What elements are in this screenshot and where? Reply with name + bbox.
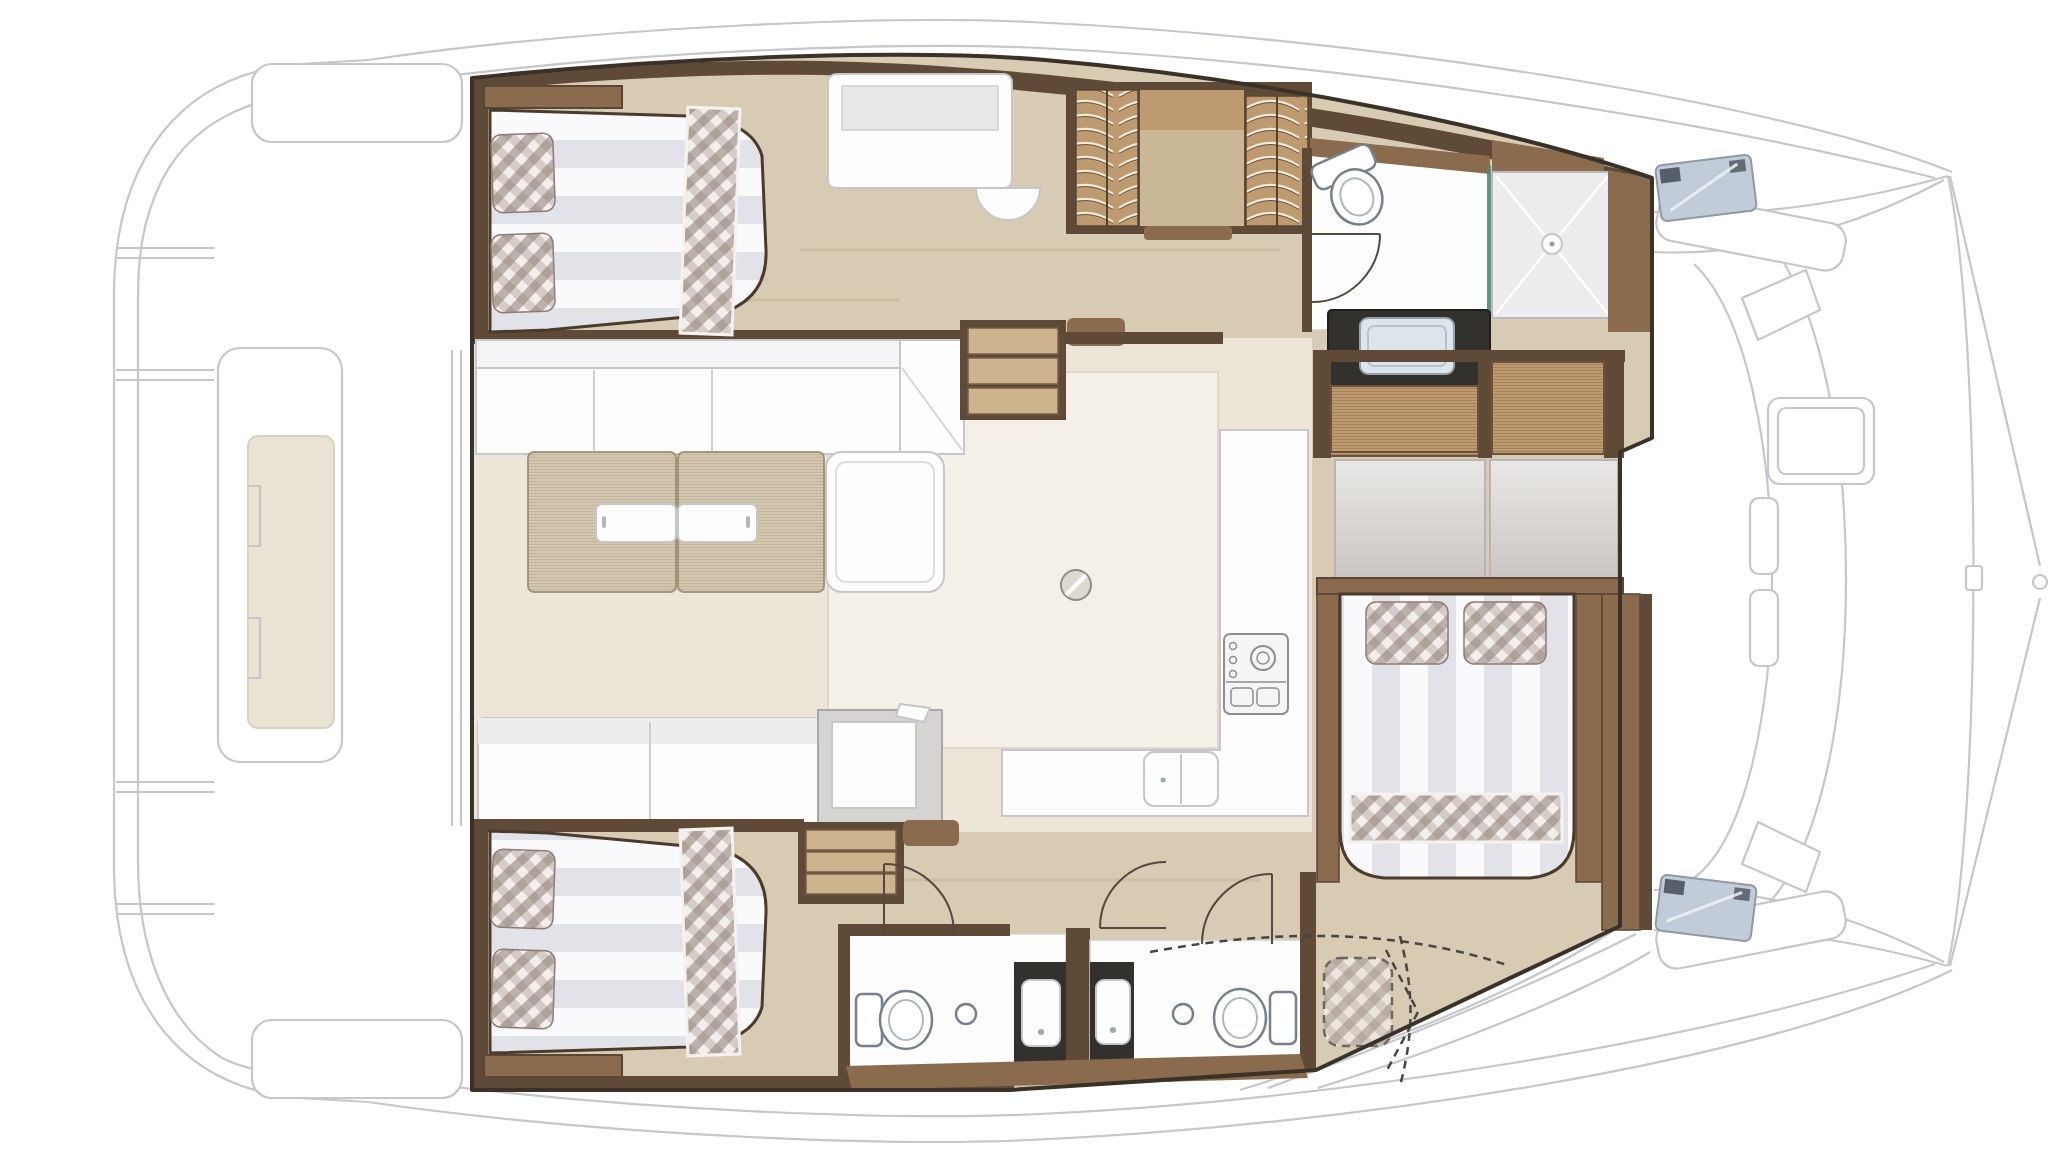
locker-door-2-grain xyxy=(1492,362,1604,454)
foredeck-sunpad xyxy=(1768,398,1874,484)
port-wardrobe-unit xyxy=(1066,82,1312,240)
bed-starboard-runner xyxy=(680,828,740,1056)
stair-tread-3 xyxy=(806,874,896,894)
salon-sofa xyxy=(476,340,964,454)
bed-port-pillow-1 xyxy=(491,133,556,213)
bed-port-pillow-2 xyxy=(491,233,556,313)
locker-frame-top xyxy=(1313,350,1625,362)
table-handle-left xyxy=(602,516,606,528)
floorplan-page xyxy=(0,0,2048,1163)
foredeck-backrest-top xyxy=(1742,270,1820,340)
hatch-frame-mark2 xyxy=(1729,159,1746,173)
wardrobe-ledge xyxy=(1144,226,1232,240)
toilet-starboard-2 xyxy=(1214,989,1296,1047)
vanity1-drain xyxy=(1038,1029,1044,1035)
stair-tread-2 xyxy=(806,852,896,872)
table-insert-left xyxy=(596,504,676,542)
bed-owner-pillow-2 xyxy=(1464,602,1546,664)
vanity2-sink xyxy=(1096,980,1130,1044)
cockpit-table-top xyxy=(248,436,334,728)
headboard-panel-left xyxy=(1335,460,1485,578)
toilet-seat xyxy=(1223,998,1257,1038)
toilet-starboard-1 xyxy=(856,991,932,1049)
bathroom-left-wall xyxy=(1302,148,1312,332)
bow-section xyxy=(1654,176,2047,966)
salon-bench xyxy=(478,718,820,828)
faucet-knob-2 xyxy=(1173,1004,1193,1024)
toilet-seat xyxy=(889,1000,923,1040)
chart-bin xyxy=(832,722,916,808)
side-wardrobe-edge xyxy=(1640,594,1652,930)
hatch-frame-mark xyxy=(1659,167,1681,183)
toilet-tank xyxy=(856,994,882,1046)
headboard-shelf xyxy=(484,86,622,108)
sink-drain xyxy=(1161,778,1166,783)
headboard-bar xyxy=(1317,578,1623,594)
vanity1-sink xyxy=(1022,980,1060,1046)
catamaran-floorplan xyxy=(0,0,2048,1163)
foredeck-seat-upper xyxy=(1750,498,1778,574)
table-handle-right xyxy=(746,516,750,528)
cabin-left-wall xyxy=(474,825,488,1087)
aft-cockpit xyxy=(218,64,462,1098)
locker-bar-right xyxy=(1604,350,1624,458)
salon-door-track xyxy=(452,350,461,826)
locker-bar-left xyxy=(1313,350,1331,458)
headboard-panel-right xyxy=(1490,460,1618,578)
forward-cabin xyxy=(1313,350,1652,930)
cabin-top-wall xyxy=(474,819,804,832)
deck-hatch-bottom xyxy=(1655,874,1757,941)
salon-table xyxy=(528,452,824,592)
cockpit-bench-bottom xyxy=(252,1020,462,1098)
wall-segment-port xyxy=(1063,332,1223,344)
stairs-starboard-hull xyxy=(798,822,904,904)
bed-rail-left xyxy=(1317,594,1339,882)
cabin-left-wall xyxy=(474,76,488,338)
sofa-cushions xyxy=(476,368,900,454)
wardrobe-top-shelf xyxy=(1140,90,1244,130)
table-insert-right xyxy=(678,504,757,542)
bathroom2-right-wall xyxy=(1300,872,1316,1072)
bed-starboard-pillow-2 xyxy=(491,949,556,1029)
bed-starboard-pillow-1 xyxy=(491,849,556,929)
bed-rail-right xyxy=(1576,594,1602,882)
wall-nub-starboard xyxy=(903,820,959,846)
bed-owner-runner xyxy=(1350,794,1562,842)
locker-door-1-grain xyxy=(1331,386,1478,452)
salon-chaise xyxy=(826,452,944,592)
stair-tread-1 xyxy=(968,328,1058,354)
wardrobe-open-shelf xyxy=(1140,130,1244,226)
bed-port-runner xyxy=(680,107,740,335)
stair-tread-3 xyxy=(968,388,1058,414)
vanity2-drain xyxy=(1110,1027,1116,1033)
bed-owner-pillow-1 xyxy=(1366,602,1448,664)
sofa-back xyxy=(476,340,942,370)
cooktop xyxy=(1224,634,1288,714)
bridle-ring xyxy=(2033,575,2047,589)
bathroom1-top-wall xyxy=(838,924,1010,936)
galley-sink xyxy=(1144,752,1218,806)
faucet-knob-1 xyxy=(956,1004,976,1024)
locker-bar-mid xyxy=(1478,362,1492,458)
shower-right-wall xyxy=(1608,170,1650,332)
toilet-tank xyxy=(1270,992,1296,1044)
stair-tread-2 xyxy=(968,358,1058,384)
sofa-corner xyxy=(900,340,964,454)
desk-inset xyxy=(842,86,998,130)
foredeck-lounge xyxy=(1653,190,1874,971)
stair-tread-1 xyxy=(806,830,896,850)
swim-platform-steps xyxy=(116,248,214,914)
bathroom1-left-wall xyxy=(838,930,850,1080)
mast-step xyxy=(1966,566,1982,590)
headboard-shelf xyxy=(484,1055,622,1077)
deck-hatch-top xyxy=(1655,154,1757,221)
chart-station xyxy=(818,704,942,830)
hatch-frame-mark xyxy=(1664,879,1686,895)
foredeck-seat-lower xyxy=(1750,590,1778,666)
cockpit-bench-top xyxy=(252,64,462,142)
berth-cushion-dashed xyxy=(1324,958,1392,1046)
bathroom-port xyxy=(1302,138,1490,332)
bathroom-divider-wall xyxy=(1066,928,1090,1080)
stairs-port-hull xyxy=(960,320,1066,420)
glass-partition xyxy=(1487,166,1491,320)
shower-drain-dot xyxy=(1550,242,1555,247)
floor-hatch xyxy=(1061,570,1091,600)
